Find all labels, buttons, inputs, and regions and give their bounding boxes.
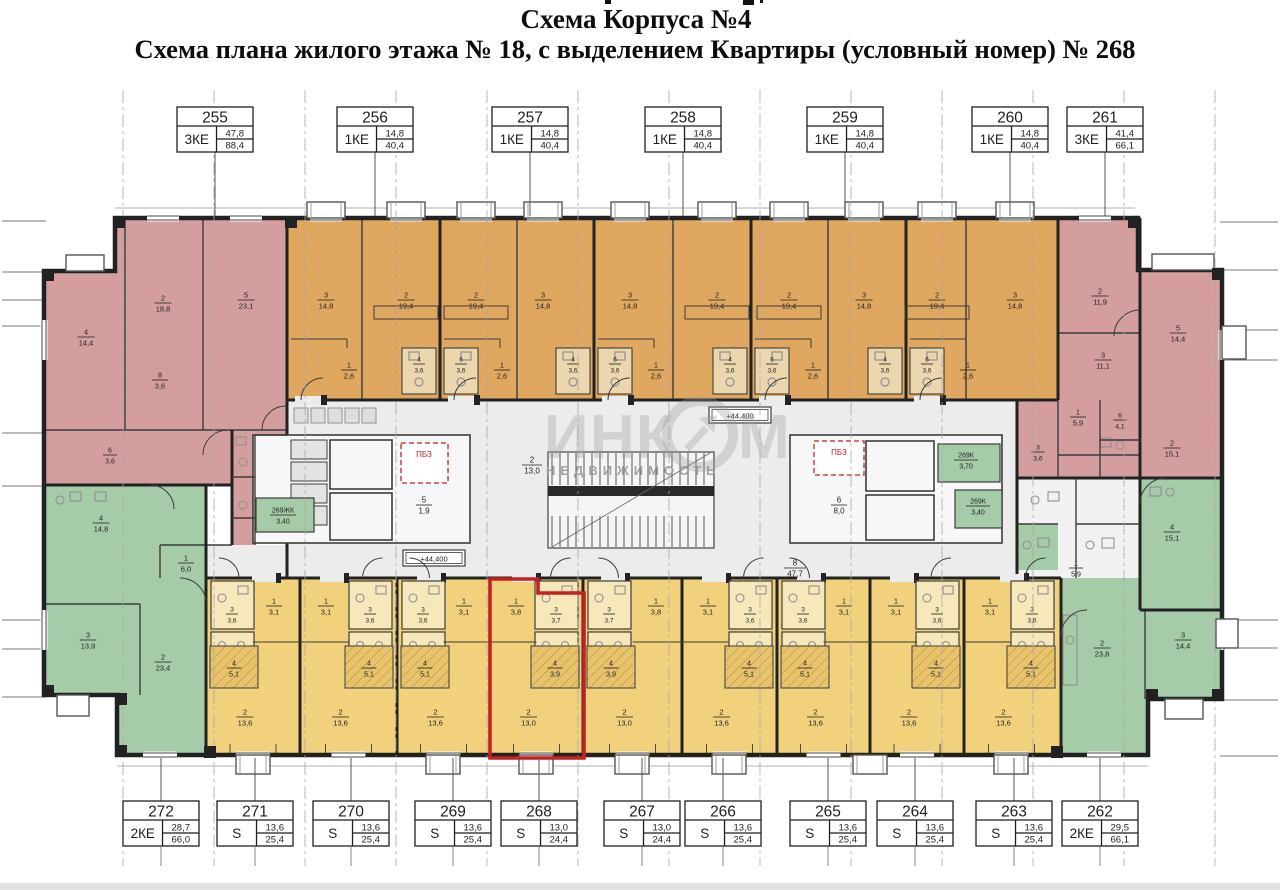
- svg-text:5: 5: [1176, 324, 1180, 333]
- svg-text:40,4: 40,4: [694, 141, 713, 152]
- svg-text:3,6: 3,6: [932, 618, 941, 625]
- svg-text:3,6: 3,6: [568, 368, 577, 375]
- svg-text:3: 3: [368, 607, 372, 614]
- svg-text:4: 4: [1170, 523, 1174, 532]
- svg-text:И: И: [544, 403, 589, 472]
- svg-text:15,1: 15,1: [1165, 534, 1179, 543]
- svg-text:25,4: 25,4: [464, 835, 483, 846]
- svg-text:3,1: 3,1: [839, 608, 849, 617]
- svg-text:1: 1: [842, 597, 846, 606]
- svg-text:88,4: 88,4: [226, 141, 245, 152]
- svg-text:13,6: 13,6: [714, 719, 729, 728]
- svg-text:2: 2: [1100, 639, 1104, 648]
- svg-text:4: 4: [84, 328, 88, 337]
- svg-text:1: 1: [324, 597, 328, 606]
- svg-text:25,4: 25,4: [734, 835, 753, 846]
- svg-text:256: 256: [362, 110, 388, 127]
- svg-text:3: 3: [421, 607, 425, 614]
- svg-text:2: 2: [474, 291, 478, 300]
- svg-text:2: 2: [1098, 287, 1102, 296]
- svg-text:3,8: 3,8: [511, 608, 521, 617]
- svg-text:1КЕ: 1КЕ: [345, 132, 369, 147]
- svg-text:2: 2: [813, 708, 817, 717]
- svg-text:3: 3: [1181, 631, 1185, 640]
- svg-text:14,4: 14,4: [1171, 335, 1185, 344]
- svg-text:14,8: 14,8: [857, 302, 871, 311]
- svg-text:2: 2: [243, 708, 247, 717]
- svg-text:Схема Корпуса №4: Схема Корпуса №4: [521, 4, 752, 34]
- svg-text:1: 1: [1076, 408, 1080, 417]
- svg-text:3,6: 3,6: [1027, 618, 1036, 625]
- svg-text:S: S: [430, 826, 439, 841]
- svg-text:2: 2: [787, 291, 791, 300]
- svg-text:14,4: 14,4: [1176, 642, 1190, 651]
- svg-text:1: 1: [514, 597, 518, 606]
- svg-text:4: 4: [367, 659, 371, 668]
- svg-text:13,6: 13,6: [996, 719, 1011, 728]
- svg-text:23,8: 23,8: [1095, 650, 1109, 659]
- svg-text:3,40: 3,40: [971, 510, 985, 517]
- svg-text:13,6: 13,6: [428, 719, 443, 728]
- svg-text:5: 5: [422, 496, 427, 505]
- svg-text:2,6: 2,6: [651, 372, 661, 381]
- svg-text:4: 4: [232, 659, 236, 668]
- svg-text:1: 1: [988, 597, 992, 606]
- svg-text:14,8: 14,8: [623, 302, 637, 311]
- svg-text:4: 4: [883, 357, 887, 364]
- svg-text:3: 3: [1036, 445, 1040, 452]
- svg-text:1: 1: [462, 597, 466, 606]
- svg-text:4: 4: [934, 659, 938, 668]
- svg-text:14,8: 14,8: [94, 525, 108, 534]
- svg-text:1: 1: [347, 361, 351, 370]
- svg-text:2: 2: [530, 456, 535, 465]
- svg-text:3: 3: [862, 291, 866, 300]
- svg-text:6: 6: [837, 496, 842, 505]
- svg-text:4: 4: [571, 357, 575, 364]
- svg-text:4: 4: [99, 514, 103, 523]
- svg-text:25,4: 25,4: [266, 835, 285, 846]
- svg-text:6: 6: [459, 357, 463, 364]
- svg-text:4: 4: [423, 659, 427, 668]
- svg-text:S: S: [805, 826, 814, 841]
- svg-text:13,6: 13,6: [926, 823, 945, 834]
- svg-text:13,6: 13,6: [839, 823, 858, 834]
- svg-text:3,6: 3,6: [767, 368, 776, 375]
- svg-text:8: 8: [158, 371, 162, 380]
- svg-text:3: 3: [801, 607, 805, 614]
- svg-text:3,1: 3,1: [985, 608, 995, 617]
- svg-text:3,1: 3,1: [891, 608, 901, 617]
- svg-text:ПБЗ: ПБЗ: [416, 450, 432, 459]
- svg-text:14,8: 14,8: [319, 302, 333, 311]
- svg-text:3,6: 3,6: [155, 382, 165, 391]
- svg-text:41,4: 41,4: [1116, 129, 1135, 140]
- svg-text:1: 1: [894, 597, 898, 606]
- svg-text:2,6: 2,6: [808, 372, 818, 381]
- svg-text:2: 2: [715, 291, 719, 300]
- svg-text:1КЕ: 1КЕ: [500, 132, 524, 147]
- svg-text:3КЕ: 3КЕ: [185, 132, 209, 147]
- svg-text:S: S: [700, 826, 709, 841]
- svg-text:29,5: 29,5: [1111, 823, 1130, 834]
- svg-text:14,4: 14,4: [79, 339, 93, 348]
- svg-text:3,1: 3,1: [459, 608, 469, 617]
- svg-text:3: 3: [541, 291, 545, 300]
- svg-text:3,6: 3,6: [418, 618, 427, 625]
- svg-text:272: 272: [148, 804, 174, 821]
- svg-text:1: 1: [706, 597, 710, 606]
- svg-text:40,4: 40,4: [1021, 141, 1040, 152]
- svg-text:2КЕ: 2КЕ: [131, 826, 155, 841]
- svg-text:5,1: 5,1: [1026, 670, 1036, 679]
- svg-text:3: 3: [1013, 291, 1017, 300]
- svg-text:262: 262: [1087, 804, 1113, 821]
- svg-text:3,6: 3,6: [798, 618, 807, 625]
- svg-text:3,70: 3,70: [959, 464, 973, 471]
- svg-text:5,9: 5,9: [1073, 419, 1083, 428]
- svg-text:4: 4: [553, 659, 557, 668]
- svg-text:265: 265: [815, 804, 841, 821]
- svg-text:264: 264: [902, 804, 928, 821]
- svg-text:14,8: 14,8: [694, 129, 713, 140]
- svg-text:269: 269: [440, 804, 466, 821]
- svg-text:3: 3: [554, 607, 558, 614]
- svg-text:13,6: 13,6: [362, 823, 381, 834]
- svg-text:258: 258: [670, 110, 696, 127]
- svg-text:25,4: 25,4: [839, 835, 858, 846]
- svg-text:13,6: 13,6: [333, 719, 348, 728]
- svg-text:3: 3: [1030, 607, 1034, 614]
- svg-text:23,4: 23,4: [156, 664, 170, 673]
- svg-text:13,0: 13,0: [653, 823, 672, 834]
- svg-text:4: 4: [728, 357, 732, 364]
- svg-text:3,6: 3,6: [725, 368, 734, 375]
- svg-text:11,9: 11,9: [1093, 298, 1107, 307]
- svg-text:1: 1: [272, 597, 276, 606]
- svg-text:1: 1: [184, 554, 188, 563]
- svg-text:66,1: 66,1: [1116, 141, 1135, 152]
- svg-text:2,6: 2,6: [497, 372, 507, 381]
- svg-text:13,6: 13,6: [464, 823, 483, 834]
- svg-text:47,8: 47,8: [226, 129, 245, 140]
- svg-text:13,0: 13,0: [550, 823, 569, 834]
- svg-text:3КЕ: 3КЕ: [1075, 132, 1099, 147]
- svg-text:5,1: 5,1: [931, 670, 941, 679]
- svg-text:4,1: 4,1: [1115, 424, 1125, 431]
- svg-text:4: 4: [1029, 659, 1033, 668]
- svg-text:13,6: 13,6: [808, 719, 823, 728]
- svg-text:5,1: 5,1: [364, 670, 374, 679]
- svg-text:14,8: 14,8: [856, 129, 875, 140]
- svg-text:3,40: 3,40: [276, 519, 290, 526]
- svg-text:5,1: 5,1: [800, 670, 810, 679]
- svg-text:3,6: 3,6: [105, 459, 115, 466]
- svg-text:268: 268: [526, 804, 552, 821]
- svg-text:6: 6: [613, 357, 617, 364]
- svg-text:24,4: 24,4: [653, 835, 672, 846]
- svg-text:3,7: 3,7: [604, 618, 613, 625]
- svg-text:25,4: 25,4: [926, 835, 945, 846]
- svg-text:4: 4: [417, 357, 421, 364]
- svg-text:1: 1: [654, 361, 658, 370]
- svg-text:6: 6: [1118, 413, 1122, 420]
- svg-text:6,0: 6,0: [181, 565, 191, 574]
- svg-text:3: 3: [607, 607, 611, 614]
- svg-text:13,6: 13,6: [734, 823, 753, 834]
- svg-text:1: 1: [500, 361, 504, 370]
- svg-text:13,0: 13,0: [524, 467, 540, 476]
- svg-text:3: 3: [748, 607, 752, 614]
- svg-text:13,6: 13,6: [1025, 823, 1044, 834]
- svg-text:13,6: 13,6: [238, 719, 253, 728]
- svg-text:3,6: 3,6: [365, 618, 374, 625]
- svg-text:4: 4: [803, 659, 807, 668]
- svg-text:11,1: 11,1: [1096, 362, 1110, 371]
- svg-text:271: 271: [242, 804, 268, 821]
- svg-text:3,6: 3,6: [745, 618, 754, 625]
- svg-text:47,7: 47,7: [787, 570, 803, 579]
- svg-text:13,6: 13,6: [266, 823, 285, 834]
- svg-text:2: 2: [161, 653, 165, 662]
- svg-text:S: S: [892, 826, 901, 841]
- svg-text:1КЕ: 1КЕ: [980, 132, 1004, 147]
- svg-text:2,6: 2,6: [344, 372, 354, 381]
- svg-text:40,4: 40,4: [386, 141, 405, 152]
- svg-text:259: 259: [832, 110, 858, 127]
- svg-text:М: М: [738, 403, 790, 472]
- svg-text:13,0: 13,0: [617, 719, 632, 728]
- svg-text:14,8: 14,8: [536, 302, 550, 311]
- svg-text:28,7: 28,7: [172, 823, 191, 834]
- svg-text:269ЖК: 269ЖК: [272, 508, 295, 515]
- svg-text:1,9: 1,9: [418, 507, 430, 516]
- svg-text:1: 1: [654, 597, 658, 606]
- svg-text:2: 2: [338, 708, 342, 717]
- svg-text:S: S: [516, 826, 525, 841]
- svg-text:2: 2: [433, 708, 437, 717]
- svg-text:263: 263: [1001, 804, 1027, 821]
- svg-text:267: 267: [629, 804, 655, 821]
- svg-text:3: 3: [86, 631, 90, 640]
- svg-text:66,0: 66,0: [172, 835, 191, 846]
- svg-text:S: S: [328, 826, 337, 841]
- svg-text:S: S: [232, 826, 241, 841]
- svg-text:25,4: 25,4: [362, 835, 381, 846]
- svg-text:24,4: 24,4: [550, 835, 569, 846]
- svg-text:2: 2: [161, 294, 165, 303]
- svg-text:6: 6: [925, 357, 929, 364]
- svg-text:6: 6: [108, 448, 112, 455]
- svg-text:255: 255: [202, 110, 228, 127]
- svg-text:Схема плана жилого этажа № 18,: Схема плана жилого этажа № 18, с выделен…: [134, 34, 1135, 64]
- svg-text:5,1: 5,1: [420, 670, 430, 679]
- svg-text:3: 3: [324, 291, 328, 300]
- svg-text:13,6: 13,6: [902, 719, 917, 728]
- svg-text:270: 270: [338, 804, 364, 821]
- svg-text:2КЕ: 2КЕ: [1070, 826, 1094, 841]
- svg-text:260: 260: [997, 110, 1023, 127]
- svg-text:3,6: 3,6: [880, 368, 889, 375]
- svg-text:НЕДВИЖИМОСТЬ: НЕДВИЖИМОСТЬ: [546, 463, 720, 478]
- svg-text:269К: 269К: [958, 453, 975, 460]
- svg-text:14,8: 14,8: [1008, 302, 1022, 311]
- svg-text:269К: 269К: [970, 499, 987, 506]
- svg-text:257: 257: [517, 110, 543, 127]
- svg-text:2: 2: [907, 708, 911, 717]
- svg-text:1: 1: [966, 361, 970, 370]
- svg-text:66,1: 66,1: [1111, 835, 1130, 846]
- svg-text:3,8: 3,8: [651, 608, 661, 617]
- svg-text:25,4: 25,4: [1025, 835, 1044, 846]
- svg-text:3,6: 3,6: [1033, 456, 1043, 463]
- svg-text:3: 3: [230, 607, 234, 614]
- svg-text:1: 1: [811, 361, 815, 370]
- svg-text:S: S: [619, 826, 628, 841]
- svg-text:2: 2: [1170, 439, 1174, 448]
- svg-text:18,8: 18,8: [156, 305, 170, 314]
- svg-text:266: 266: [710, 804, 736, 821]
- svg-text:5,1: 5,1: [229, 670, 239, 679]
- svg-text:2: 2: [404, 291, 408, 300]
- svg-text:3,1: 3,1: [321, 608, 331, 617]
- svg-text:40,4: 40,4: [856, 141, 875, 152]
- svg-text:2: 2: [526, 708, 530, 717]
- svg-text:2: 2: [1001, 708, 1005, 717]
- svg-text:3,6: 3,6: [227, 618, 236, 625]
- svg-text:14,8: 14,8: [386, 129, 405, 140]
- svg-text:14,8: 14,8: [541, 129, 560, 140]
- svg-text:3: 3: [1101, 351, 1105, 360]
- svg-text:23,1: 23,1: [239, 302, 253, 311]
- svg-text:2: 2: [719, 708, 723, 717]
- svg-text:3,1: 3,1: [703, 608, 713, 617]
- svg-text:2: 2: [935, 291, 939, 300]
- svg-text:3,9: 3,9: [550, 670, 560, 679]
- svg-text:40,4: 40,4: [541, 141, 560, 152]
- svg-text:Н: Н: [590, 403, 635, 472]
- svg-text:2: 2: [622, 708, 626, 717]
- svg-text:13,9: 13,9: [81, 642, 95, 651]
- svg-text:+44,400: +44,400: [420, 555, 447, 564]
- svg-text:5,1: 5,1: [744, 670, 754, 679]
- svg-text:14,8: 14,8: [1021, 129, 1040, 140]
- svg-text:1КЕ: 1КЕ: [815, 132, 839, 147]
- svg-text:5: 5: [244, 291, 248, 300]
- svg-text:13,0: 13,0: [521, 719, 536, 728]
- svg-text:S: S: [991, 826, 1000, 841]
- svg-text:3,1: 3,1: [269, 608, 279, 617]
- svg-text:3,9: 3,9: [606, 670, 616, 679]
- svg-text:3: 3: [935, 607, 939, 614]
- svg-text:1КЕ: 1КЕ: [653, 132, 677, 147]
- svg-text:3,6: 3,6: [610, 368, 619, 375]
- svg-text:6: 6: [770, 357, 774, 364]
- svg-text:15,1: 15,1: [1165, 450, 1179, 459]
- svg-text:8,0: 8,0: [833, 507, 845, 516]
- svg-text:ПБЗ: ПБЗ: [831, 448, 847, 457]
- svg-text:3,6: 3,6: [414, 368, 423, 375]
- svg-text:4: 4: [609, 659, 613, 668]
- svg-text:3,7: 3,7: [551, 618, 560, 625]
- svg-text:2,6: 2,6: [963, 372, 973, 381]
- svg-text:261: 261: [1092, 110, 1118, 127]
- svg-text:3: 3: [628, 291, 632, 300]
- svg-text:4: 4: [747, 659, 751, 668]
- svg-text:3,6: 3,6: [922, 368, 931, 375]
- svg-text:3,6: 3,6: [456, 368, 465, 375]
